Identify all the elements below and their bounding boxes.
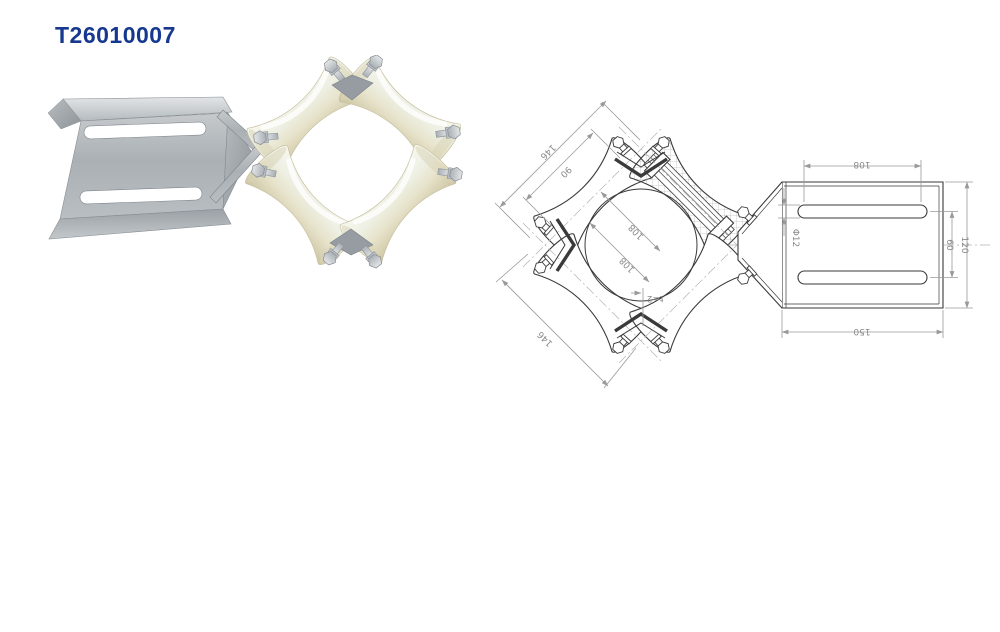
product-code: T26010007 [55, 22, 176, 49]
svg-text:108: 108 [618, 255, 637, 274]
page: T26010007 [0, 0, 1000, 632]
dimension-108-a: 108 [601, 192, 660, 251]
svg-text:t=2: t=2 [647, 293, 664, 303]
svg-text:108: 108 [627, 222, 646, 241]
svg-text:120: 120 [959, 236, 969, 253]
bracket-photo [48, 97, 265, 239]
technical-drawing-svg: 146 90 108 108 146 [490, 80, 1000, 400]
svg-text:146: 146 [536, 329, 555, 348]
svg-text:Φ12: Φ12 [790, 229, 800, 248]
mounting-plate-drawing [736, 182, 943, 308]
plate-slot-lower [798, 271, 927, 284]
product-photo-svg [40, 55, 500, 315]
plate-slot-upper [798, 205, 927, 218]
dimension-plate-width: 150 [782, 310, 943, 338]
technical-drawing: 146 90 108 108 146 [490, 80, 1000, 400]
svg-text:60: 60 [944, 239, 954, 251]
svg-text:150: 150 [853, 326, 870, 336]
svg-text:108: 108 [853, 159, 870, 169]
product-photo [40, 55, 500, 315]
svg-text:146: 146 [538, 142, 557, 161]
